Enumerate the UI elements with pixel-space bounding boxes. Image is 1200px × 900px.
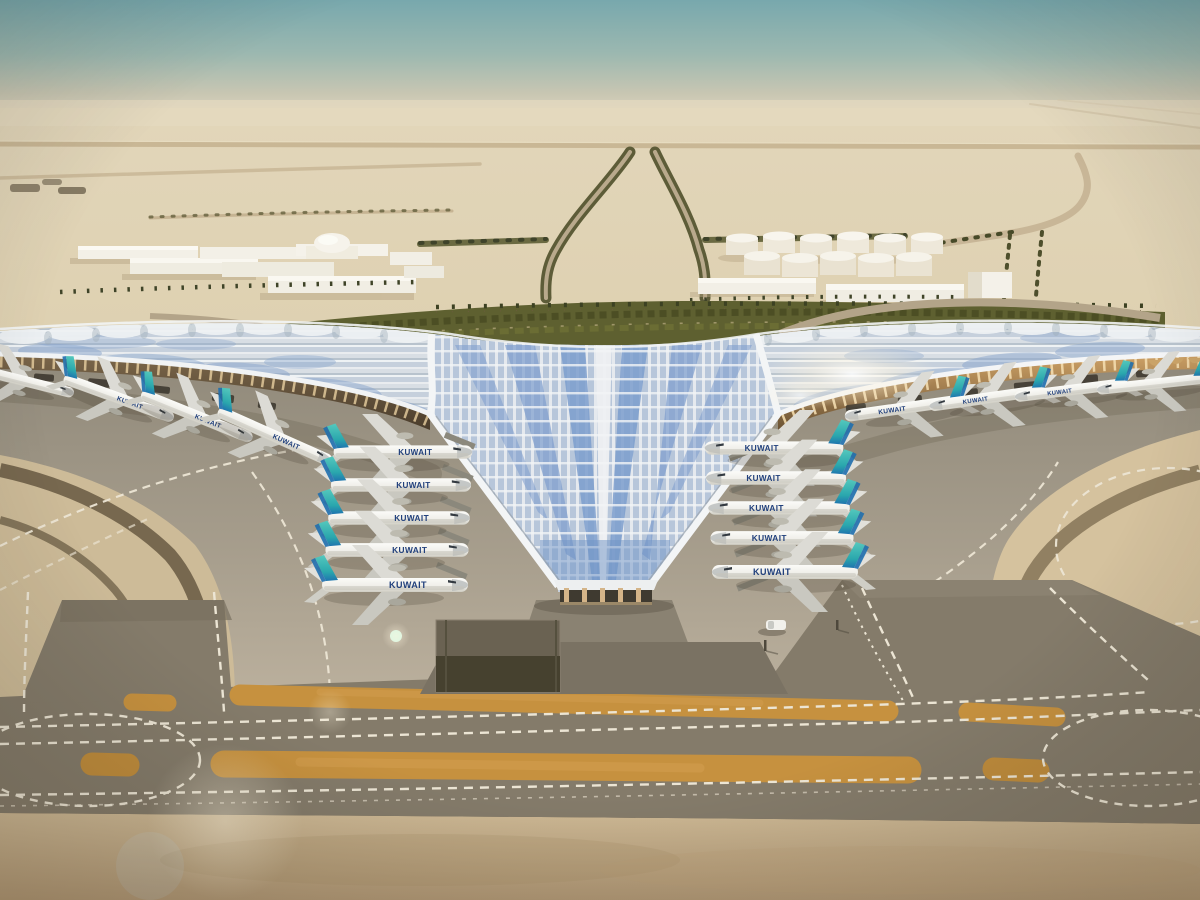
vignette-overlay (0, 0, 1200, 900)
airport-aerial-render: KUWAIT KUWAIT KUWAIT KUWAIT KUWAIT KUWAI… (0, 0, 1200, 900)
